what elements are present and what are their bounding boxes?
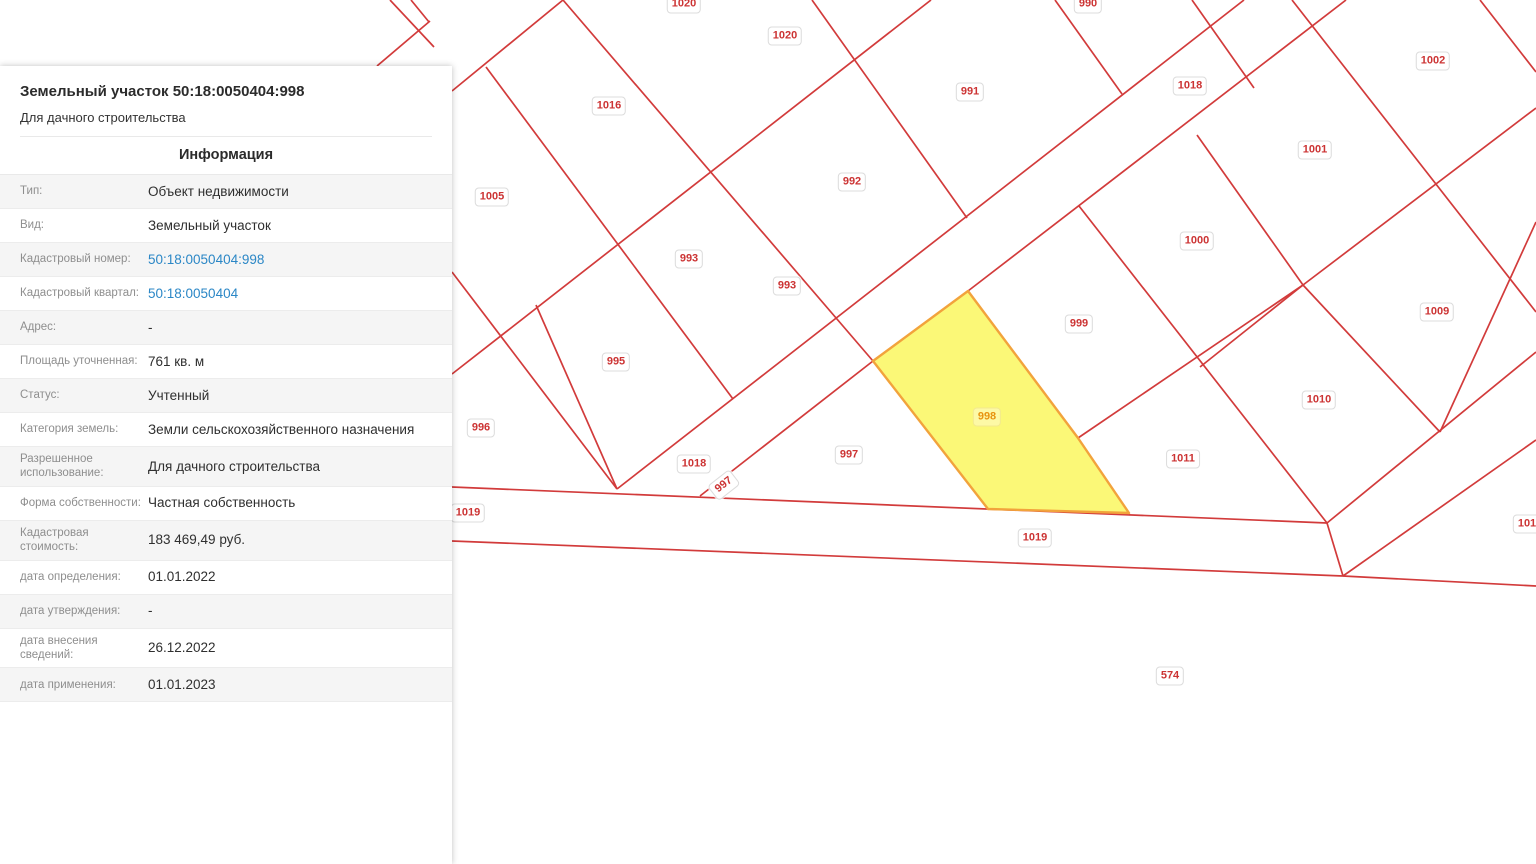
parcel-label[interactable]: 101 — [1513, 515, 1536, 534]
parcel-label[interactable]: 997 — [707, 469, 741, 501]
info-row-label: Площадь уточненная: — [0, 354, 148, 368]
parcel-label[interactable]: 574 — [1156, 667, 1184, 686]
panel-subtitle: Для дачного строительства — [20, 110, 432, 137]
parcel-label[interactable]: 1009 — [1420, 303, 1454, 322]
parcel-label[interactable]: 1018 — [1173, 77, 1207, 96]
info-row-label: Кадастровый квартал: — [0, 286, 148, 300]
info-row: Форма собственности:Частная собственност… — [0, 487, 452, 521]
parcel-label[interactable]: 1005 — [475, 188, 509, 207]
info-row-label: Тип: — [0, 184, 148, 198]
info-row-label: Кадастровая стоимость: — [0, 526, 148, 555]
parcel-info-panel: Земельный участок 50:18:0050404:998 Для … — [0, 66, 452, 864]
info-row-value: 183 469,49 руб. — [148, 531, 452, 549]
info-row-value: 26.12.2022 — [148, 639, 452, 657]
parcel-label[interactable]: 991 — [956, 83, 984, 102]
info-row-label: дата определения: — [0, 570, 148, 584]
parcel-label[interactable]: 992 — [838, 173, 866, 192]
info-row: Площадь уточненная:761 кв. м — [0, 345, 452, 379]
info-row-label: дата утверждения: — [0, 604, 148, 618]
info-row-label: дата применения: — [0, 678, 148, 692]
parcel-label[interactable]: 1002 — [1416, 52, 1450, 71]
parcel-label[interactable]: 1020 — [667, 0, 701, 14]
info-row-value: 01.01.2023 — [148, 676, 452, 694]
parcel-label[interactable]: 1000 — [1180, 232, 1214, 251]
info-row-value-link[interactable]: 50:18:0050404:998 — [148, 251, 452, 269]
parcel-label[interactable]: 1001 — [1298, 141, 1332, 160]
info-row-label: Статус: — [0, 388, 148, 402]
parcel-label[interactable]: 1019 — [451, 504, 485, 523]
info-row: дата утверждения:- — [0, 595, 452, 629]
info-row: дата внесения сведений:26.12.2022 — [0, 629, 452, 669]
info-row-label: Форма собственности: — [0, 496, 148, 510]
parcel-label[interactable]: 1020 — [768, 27, 802, 46]
parcel-label[interactable]: 1016 — [592, 97, 626, 116]
info-row: Статус:Учтенный — [0, 379, 452, 413]
info-row-value: 01.01.2022 — [148, 568, 452, 586]
info-row-label: дата внесения сведений: — [0, 634, 148, 663]
parcel-label[interactable]: 1010 — [1302, 391, 1336, 410]
info-row-value: - — [148, 602, 452, 620]
info-row: Тип:Объект недвижимости — [0, 175, 452, 209]
info-row-label: Вид: — [0, 218, 148, 232]
parcel-label[interactable]: 995 — [602, 353, 630, 372]
panel-title: Земельный участок 50:18:0050404:998 — [20, 74, 432, 110]
info-row-value: Частная собственность — [148, 494, 452, 512]
info-row: Адрес:- — [0, 311, 452, 345]
info-row-value: Для дачного строительства — [148, 458, 452, 476]
info-row-value: Земли сельскохозяйственного назначения — [148, 421, 452, 439]
selected-parcel-label[interactable]: 998 — [973, 408, 1001, 427]
info-row: дата определения:01.01.2022 — [0, 561, 452, 595]
parcel-label[interactable]: 996 — [467, 419, 495, 438]
info-row: Кадастровый квартал:50:18:0050404 — [0, 277, 452, 311]
info-row: Категория земель:Земли сельскохозяйствен… — [0, 413, 452, 447]
parcel-label[interactable]: 999 — [1065, 315, 1093, 334]
info-row-label: Категория земель: — [0, 422, 148, 436]
parcel-label[interactable]: 990 — [1074, 0, 1102, 14]
info-row-label: Разрешенное использование: — [0, 452, 148, 481]
info-row: Разрешенное использование:Для дачного ст… — [0, 447, 452, 487]
parcel-label[interactable]: 997 — [835, 446, 863, 465]
info-section-header: Информация — [0, 137, 452, 175]
info-rows: Тип:Объект недвижимостиВид:Земельный уча… — [0, 175, 452, 702]
info-row-value-link[interactable]: 50:18:0050404 — [148, 285, 452, 303]
parcel-label[interactable]: 1018 — [677, 455, 711, 474]
parcel-label[interactable]: 993 — [773, 277, 801, 296]
info-row: Кадастровый номер:50:18:0050404:998 — [0, 243, 452, 277]
info-row-value: 761 кв. м — [148, 353, 452, 371]
panel-header: Земельный участок 50:18:0050404:998 Для … — [0, 66, 452, 137]
parcel-label[interactable]: 993 — [675, 250, 703, 269]
info-row-label: Кадастровый номер: — [0, 252, 148, 266]
info-row-value: - — [148, 319, 452, 337]
info-row-value: Земельный участок — [148, 217, 452, 235]
parcel-label[interactable]: 1019 — [1018, 529, 1052, 548]
parcel-label[interactable]: 1011 — [1166, 450, 1200, 469]
info-row-value: Учтенный — [148, 387, 452, 405]
info-row: дата применения:01.01.2023 — [0, 668, 452, 702]
info-row-label: Адрес: — [0, 320, 148, 334]
info-row: Кадастровая стоимость:183 469,49 руб. — [0, 521, 452, 561]
info-row-value: Объект недвижимости — [148, 183, 452, 201]
info-row: Вид:Земельный участок — [0, 209, 452, 243]
